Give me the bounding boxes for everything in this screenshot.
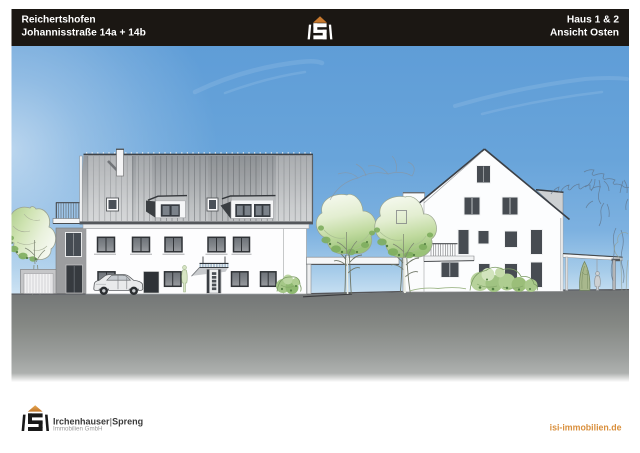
svg-text:Ansicht Osten: Ansicht Osten — [550, 28, 619, 39]
svg-text:Johannisstraße 14a + 14b: Johannisstraße 14a + 14b — [22, 28, 146, 39]
svg-text:Reichertshofen: Reichertshofen — [22, 15, 96, 26]
svg-text:Immobilien GmbH: Immobilien GmbH — [53, 425, 103, 432]
svg-text:Haus 1 & 2: Haus 1 & 2 — [567, 15, 619, 26]
svg-text:isi-immobilien.de: isi-immobilien.de — [550, 423, 622, 433]
